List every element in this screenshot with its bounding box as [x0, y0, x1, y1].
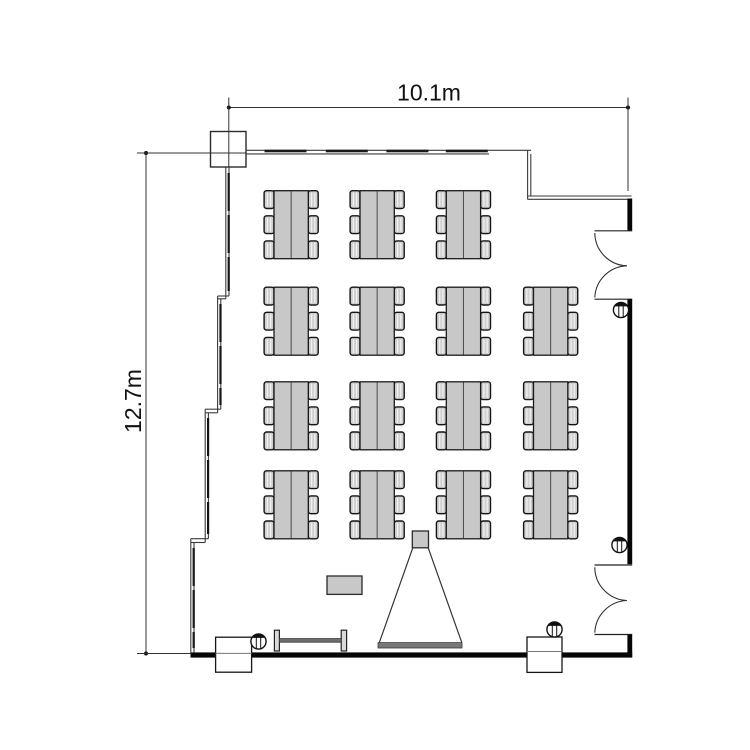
svg-text:12.7m: 12.7m	[120, 369, 146, 433]
svg-text:10.1m: 10.1m	[397, 80, 461, 106]
